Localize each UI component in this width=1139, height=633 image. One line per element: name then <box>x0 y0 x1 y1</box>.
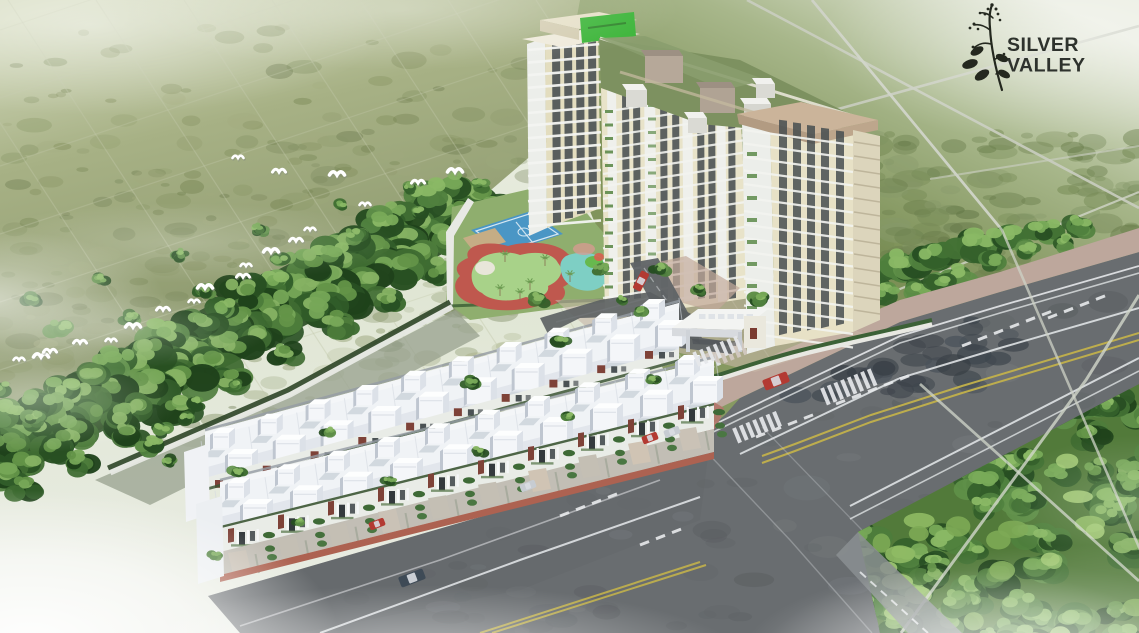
svg-text:VALLEY: VALLEY <box>1007 55 1085 77</box>
svg-text:SILVER: SILVER <box>1007 34 1079 56</box>
